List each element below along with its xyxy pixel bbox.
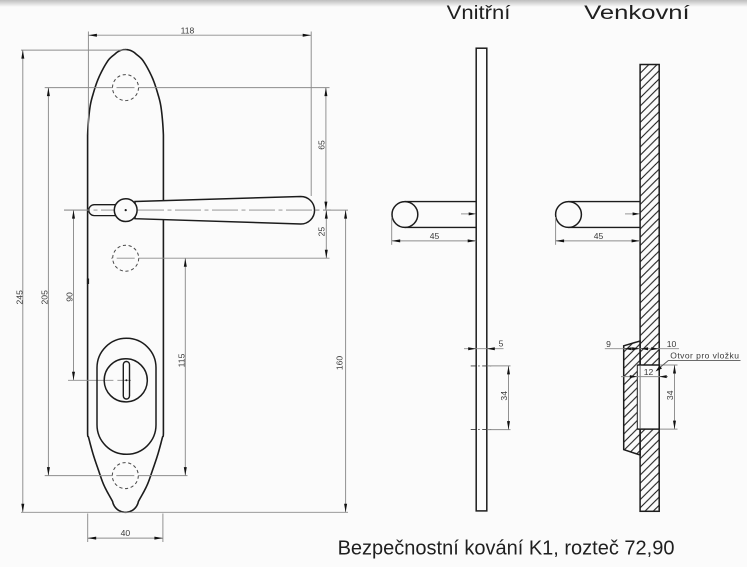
svg-text:34: 34 bbox=[499, 391, 509, 401]
svg-text:245: 245 bbox=[14, 290, 24, 305]
svg-text:205: 205 bbox=[39, 290, 49, 305]
svg-text:34: 34 bbox=[665, 390, 675, 400]
svg-text:Otvor pro vložku: Otvor pro vložku bbox=[670, 350, 739, 360]
svg-text:25: 25 bbox=[317, 227, 327, 237]
svg-text:Venkovní: Venkovní bbox=[584, 2, 690, 23]
svg-text:45: 45 bbox=[430, 231, 440, 241]
svg-text:65: 65 bbox=[316, 140, 326, 150]
svg-text:10: 10 bbox=[667, 339, 677, 349]
svg-text:90: 90 bbox=[65, 292, 75, 302]
svg-text:118: 118 bbox=[181, 26, 195, 36]
svg-text:Vnitřní: Vnitřní bbox=[447, 2, 511, 23]
svg-text:115: 115 bbox=[176, 353, 186, 367]
svg-text:12: 12 bbox=[644, 367, 654, 377]
svg-text:9: 9 bbox=[606, 339, 611, 349]
svg-text:40: 40 bbox=[121, 528, 131, 538]
svg-text:5: 5 bbox=[499, 339, 504, 349]
svg-text:45: 45 bbox=[594, 231, 604, 241]
svg-text:Bezpečnostní kování K1, rozteč: Bezpečnostní kování K1, rozteč 72,90 bbox=[338, 538, 675, 560]
svg-text:160: 160 bbox=[335, 356, 345, 371]
